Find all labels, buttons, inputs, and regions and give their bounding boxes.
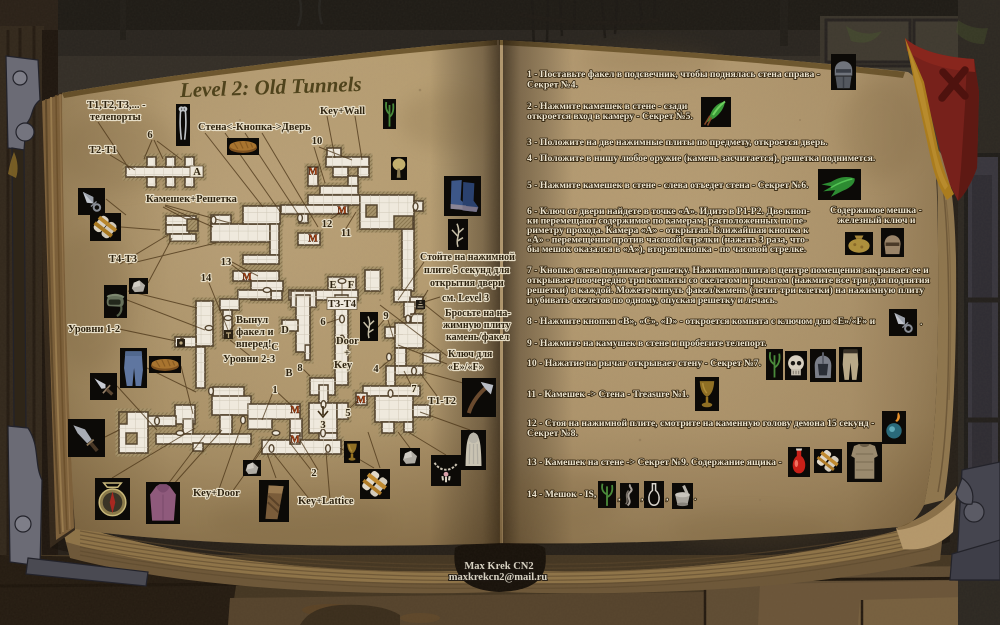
svg-text:железный ключ и: железный ключ и <box>838 215 916 226</box>
svg-text:,: , <box>666 492 669 503</box>
svg-text:и убивать скелетов по одному,: и убивать скелетов по одному, опуская ре… <box>527 295 777 306</box>
svg-text:12 - Стоя на нажимной плите, с: 12 - Стоя на нажимной плите, смотрите на… <box>527 418 874 429</box>
svg-text:бы мешок оказался в «А»), втор: бы мешок оказался в «А»), вторая кнопка … <box>527 244 806 255</box>
svg-text:.: . <box>920 317 922 328</box>
svg-text:10 - Нажатие на рычаг открывае: 10 - Нажатие на рычаг открывает стену - … <box>527 358 761 369</box>
svg-text:Секрет №8.: Секрет №8. <box>527 428 578 439</box>
svg-text:,: , <box>641 492 644 503</box>
svg-text:5 - Нажмите камешек в стене -: 5 - Нажмите камешек в стене - слева отъе… <box>527 180 809 191</box>
svg-text:Max Krek CN2: Max Krek CN2 <box>464 561 533 572</box>
svg-text:13 - Камешек на стене -> Секре: 13 - Камешек на стене -> Секрет №9. Соде… <box>527 457 782 468</box>
svg-text:1 - Поставьте факел в подсвечн: 1 - Поставьте факел в подсвечник, чтобы … <box>527 69 820 80</box>
svg-text:8 - Нажмите кнопки «В», «С», «: 8 - Нажмите кнопки «В», «С», «D» - откро… <box>527 316 876 327</box>
svg-text:3 - Положите на две нажимные п: 3 - Положите на две нажимные плиты по пр… <box>527 137 828 148</box>
svg-text:Секрет №4.: Секрет №4. <box>527 80 578 91</box>
svg-text:maxkrekcn2@mail.ru: maxkrekcn2@mail.ru <box>449 572 548 583</box>
svg-text:откроется вход в камеру - Секр: откроется вход в камеру - Секрет №5. <box>527 111 693 122</box>
svg-text:11 - Камешек -> Стена - Treasu: 11 - Камешек -> Стена - Treasure №1. <box>527 389 689 400</box>
svg-text:9 - Нажмите на камушек в стене: 9 - Нажмите на камушек в стене и пробеги… <box>527 338 767 349</box>
svg-text:4 - Положите в нишу любое оруж: 4 - Положите в нишу любое оружие (камень… <box>527 153 875 164</box>
svg-text:14 - Мешок - IS,: 14 - Мешок - IS, <box>527 489 597 500</box>
svg-text:.: . <box>694 492 696 503</box>
